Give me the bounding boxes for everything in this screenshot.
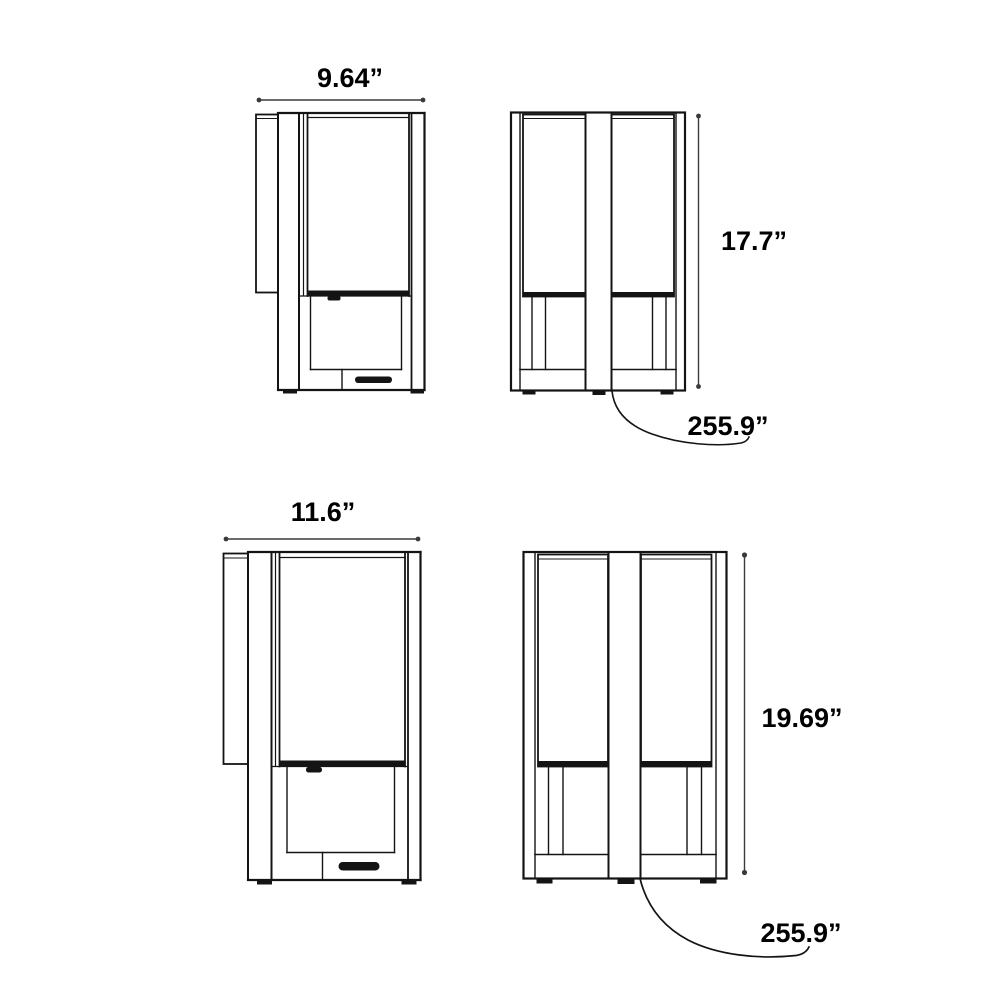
height-label-large: 19.69” [742, 704, 862, 732]
width-dimension-line-large [224, 537, 421, 542]
foot [593, 391, 606, 396]
shade-bottom-band [308, 291, 410, 296]
lamp-shade-right [612, 115, 675, 297]
cord-length-label-small: 255.9” [668, 412, 788, 440]
foot [283, 390, 297, 394]
back-panel [256, 115, 278, 293]
foot [618, 879, 635, 885]
cord-length-label-large: 255.9” [740, 919, 862, 947]
foot [402, 880, 417, 885]
diagram-canvas: 9.64” 17.7” 255.9” 11.6” 19.69” 255.9” [0, 0, 1000, 1000]
switch-tab [328, 296, 341, 301]
side-view-large-drawing [224, 537, 421, 885]
base-box [287, 853, 395, 880]
width-label-large: 11.6” [263, 498, 383, 526]
outer-frame [524, 552, 727, 879]
lamp-shade-left [538, 555, 608, 767]
foot [661, 391, 674, 395]
dimension-endpoint-dot [742, 870, 747, 875]
shade-bottom-band [641, 761, 712, 767]
foot [411, 390, 425, 394]
base-slot [355, 377, 392, 384]
width-dimension-line-small [257, 98, 426, 103]
front-view-small-drawing [511, 113, 749, 445]
switch-tab [306, 767, 322, 773]
lamp-shade-left [523, 115, 586, 297]
foot [537, 879, 553, 884]
dimension-endpoint-dot [416, 537, 421, 542]
dimension-endpoint-dot [257, 98, 262, 103]
foot [257, 880, 272, 885]
width-label-small: 9.64” [280, 64, 420, 92]
base-slot [339, 862, 380, 871]
foot [523, 391, 536, 395]
dimension-endpoint-dot [742, 552, 747, 557]
dimension-endpoint-dot [224, 537, 229, 542]
back-panel [224, 554, 249, 765]
dimension-endpoint-dot [696, 114, 701, 119]
lamp-shade [280, 552, 406, 767]
lamp-shade-right [641, 555, 712, 767]
front-view-large-drawing [524, 552, 810, 957]
side-view-small-drawing [256, 98, 425, 394]
lamp-shade [308, 113, 410, 296]
shade-bottom-band [612, 292, 675, 297]
foot [700, 879, 717, 884]
outer-frame [511, 113, 685, 391]
dimension-endpoint-dot [696, 384, 701, 389]
shade-bottom-band [538, 761, 608, 767]
dimension-endpoint-dot [421, 98, 426, 103]
height-label-small: 17.7” [694, 227, 814, 255]
base-box [311, 370, 402, 390]
dimension-diagram-svg [0, 0, 1000, 1000]
shade-bottom-band [280, 761, 406, 767]
